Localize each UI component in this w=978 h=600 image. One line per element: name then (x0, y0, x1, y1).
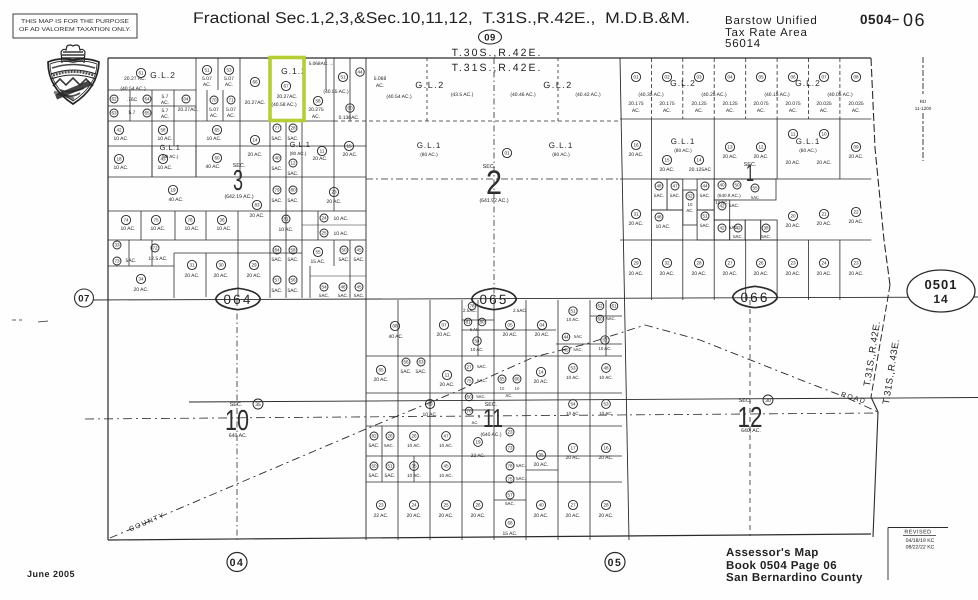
svg-text:34: 34 (138, 277, 144, 282)
svg-text:78: 78 (469, 304, 475, 309)
svg-text:065: 065 (479, 292, 508, 307)
svg-text:20 AC.: 20 AC. (249, 213, 264, 219)
svg-text:77: 77 (274, 126, 280, 131)
svg-text:80: 80 (479, 320, 485, 325)
svg-text:Assessor's Map: Assessor's Map (726, 547, 819, 559)
svg-text:78: 78 (507, 464, 513, 469)
svg-text:20 AC.: 20 AC. (470, 513, 485, 519)
svg-text:(80 AC.): (80 AC.) (674, 148, 692, 154)
svg-text:05: 05 (758, 75, 764, 80)
svg-text:36: 36 (219, 218, 225, 223)
svg-text:G.L.1: G.L.1 (796, 137, 821, 146)
svg-text:68: 68 (507, 521, 513, 526)
svg-text:5AC.: 5AC. (415, 369, 426, 375)
svg-text:10 AC.: 10 AC. (566, 411, 580, 416)
svg-text:75: 75 (466, 379, 472, 384)
svg-text:G.L.1: G.L.1 (549, 141, 574, 150)
svg-text:AC.: AC. (726, 108, 734, 114)
svg-text:G.L.2: G.L.2 (150, 70, 176, 80)
svg-text:14: 14 (538, 370, 544, 375)
svg-text:04: 04 (183, 97, 189, 102)
svg-text:14: 14 (933, 292, 948, 306)
svg-text:31: 31 (189, 263, 195, 268)
svg-text:20 AC.: 20 AC. (848, 271, 863, 277)
svg-text:AC.: AC. (376, 83, 384, 89)
svg-text:80: 80 (290, 188, 296, 193)
svg-text:0504: 0504 (860, 12, 892, 27)
svg-text:10 AC.: 10 AC. (470, 347, 483, 352)
svg-text:64: 64 (144, 97, 150, 102)
svg-text:5.068AC.→: 5.068AC.→ (309, 61, 334, 67)
svg-text:AC.: AC. (789, 108, 797, 114)
svg-text:26: 26 (475, 503, 481, 508)
svg-text:5AC.: 5AC. (729, 203, 739, 208)
svg-text:04: 04 (727, 75, 733, 80)
svg-text:51: 51 (204, 68, 210, 73)
svg-text:57: 57 (274, 278, 280, 283)
svg-text:(40.54 AC.): (40.54 AC.) (386, 94, 412, 100)
svg-text:45: 45 (563, 348, 569, 353)
svg-text:20 AC.: 20 AC. (533, 513, 548, 519)
svg-text:5AC.: 5AC. (368, 473, 379, 479)
svg-text:(40.55 AC.): (40.55 AC.) (323, 89, 349, 95)
svg-text:23: 23 (378, 503, 384, 508)
svg-text:20 AC.: 20 AC. (628, 271, 643, 277)
svg-text:10 AC.: 10 AC. (599, 375, 613, 380)
svg-text:20 AC.: 20 AC. (659, 167, 674, 173)
svg-text:16: 16 (603, 446, 609, 451)
svg-text:5AC.: 5AC. (287, 198, 298, 204)
svg-text:20.27AC.: 20.27AC. (178, 107, 199, 113)
svg-text:75: 75 (153, 218, 159, 223)
svg-text:62: 62 (597, 304, 603, 309)
svg-text:20 AC.: 20 AC. (691, 271, 706, 277)
svg-text:23: 23 (507, 430, 513, 435)
svg-text:54: 54 (321, 285, 327, 290)
svg-text:20 AC.: 20 AC. (785, 271, 800, 277)
svg-text:(640.8 AC.): (640.8 AC.) (717, 193, 741, 198)
svg-text:AC.: AC. (203, 82, 211, 88)
svg-text:65: 65 (144, 111, 150, 116)
svg-text:40: 40 (719, 183, 725, 188)
svg-text:10 AC.: 10 AC. (598, 346, 611, 351)
svg-text:09: 09 (484, 32, 496, 43)
svg-text:60: 60 (466, 395, 472, 400)
svg-text:58: 58 (160, 128, 166, 133)
svg-text:44: 44 (702, 184, 708, 189)
svg-text:42: 42 (719, 226, 725, 231)
svg-text:AC.: AC. (852, 108, 860, 114)
svg-text:5AC.: 5AC. (287, 288, 298, 294)
svg-text:(40.46 AC.): (40.46 AC.) (510, 92, 536, 98)
svg-text:5AC.: 5AC. (384, 443, 394, 448)
svg-text:AC.: AC. (161, 114, 169, 120)
svg-text:(40.42 AC.): (40.42 AC.) (575, 92, 601, 98)
svg-text:52: 52 (687, 194, 693, 199)
svg-text:24: 24 (821, 261, 827, 266)
svg-text:20.27 AC.: 20.27 AC. (124, 76, 146, 82)
svg-text:43: 43 (735, 226, 741, 231)
svg-text:10 AC.: 10 AC. (655, 224, 670, 230)
svg-text:14: 14 (696, 158, 702, 163)
svg-text:27: 27 (570, 503, 576, 508)
svg-text:OF AD VALOREM TAXATION ONLY.: OF AD VALOREM TAXATION ONLY. (19, 27, 132, 33)
svg-text:55: 55 (752, 186, 758, 191)
svg-text:5AC.: 5AC. (573, 347, 582, 352)
svg-text:24: 24 (321, 216, 327, 221)
svg-text:45: 45 (356, 248, 362, 253)
svg-text:10: 10 (515, 386, 520, 391)
svg-text:5AC.: 5AC. (338, 293, 348, 298)
svg-text:21: 21 (821, 212, 827, 217)
svg-text:5AC.: 5AC. (125, 258, 136, 264)
svg-text:20 AC.: 20 AC. (438, 513, 453, 519)
svg-text:12.5 AC.: 12.5 AC. (148, 256, 167, 262)
svg-text:20 AC.: 20 AC. (373, 377, 388, 383)
svg-text:06: 06 (903, 10, 926, 30)
svg-text:10 AC.: 10 AC. (333, 216, 348, 222)
svg-text:58: 58 (290, 248, 296, 253)
svg-text:32: 32 (664, 261, 670, 266)
svg-text:81: 81 (283, 217, 289, 222)
svg-text:23: 23 (790, 261, 796, 266)
svg-text:0501: 0501 (925, 277, 958, 292)
svg-text:5AC.: 5AC. (761, 234, 771, 239)
svg-text:51: 51 (340, 75, 346, 80)
svg-text:01: 01 (504, 151, 510, 156)
svg-text:20 AC.: 20 AC. (133, 287, 148, 293)
svg-text:07: 07 (821, 75, 827, 80)
svg-text:12: 12 (758, 145, 764, 150)
svg-text:44: 44 (563, 335, 569, 340)
svg-text:20 AC.: 20 AC. (816, 160, 831, 166)
svg-text:03: 03 (696, 75, 702, 80)
svg-text:26: 26 (758, 261, 764, 266)
svg-text:10 AC.: 10 AC. (278, 227, 293, 233)
svg-text:20 AC.: 20 AC. (326, 199, 341, 205)
svg-text:20 AC.: 20 AC. (816, 221, 831, 227)
svg-text:5AC.: 5AC. (271, 166, 282, 172)
svg-text:08: 08 (392, 324, 398, 329)
svg-text:63: 63 (111, 111, 117, 116)
svg-text:5AC.: 5AC. (670, 193, 680, 198)
svg-text:47: 47 (443, 434, 449, 439)
svg-text:20 AC.: 20 AC. (753, 271, 768, 277)
svg-text:60: 60 (214, 156, 220, 161)
svg-text:G.L.2: G.L.2 (670, 78, 696, 88)
svg-text:17: 17 (570, 446, 576, 451)
svg-text:(641.92 AC.): (641.92 AC.) (479, 198, 508, 204)
svg-text:20 AC.: 20 AC. (722, 154, 737, 160)
svg-text:20 AC.: 20 AC. (342, 152, 357, 158)
svg-text:20 AC.: 20 AC. (533, 462, 548, 468)
svg-text:20 AC.: 20 AC. (628, 152, 643, 158)
svg-text:10 AC.: 10 AC. (407, 443, 421, 448)
svg-text:82: 82 (371, 434, 377, 439)
svg-text:04/18/19 KC: 04/18/19 KC (906, 538, 935, 544)
svg-text:56: 56 (290, 278, 296, 283)
svg-text:REVISED: REVISED (904, 530, 931, 536)
svg-text:G.L.1: G.L.1 (290, 140, 311, 149)
svg-text:5AC.: 5AC. (400, 369, 411, 375)
svg-text:50: 50 (371, 464, 377, 469)
svg-text:15 AC.: 15 AC. (310, 259, 325, 265)
svg-text:(80 AC.): (80 AC.) (552, 152, 570, 158)
svg-text:28: 28 (290, 126, 296, 131)
svg-text:5AC.: 5AC. (733, 234, 743, 239)
svg-text:Barstow Unified: Barstow Unified (725, 15, 818, 27)
svg-text:AC.: AC. (663, 108, 671, 114)
svg-text:71: 71 (228, 98, 234, 103)
svg-text:5AC.: 5AC. (476, 394, 485, 399)
svg-text:66: 66 (252, 80, 258, 85)
svg-text:20 AC.: 20 AC. (722, 271, 737, 277)
svg-text:73: 73 (507, 446, 513, 451)
svg-text:20 AC.: 20 AC. (848, 154, 863, 160)
svg-text:(40.5​8 AC.): (40.5​8 AC.) (271, 102, 297, 108)
svg-text:20 AC.: 20 AC. (598, 455, 613, 461)
svg-text:51: 51 (702, 214, 708, 219)
svg-text:30: 30 (765, 398, 771, 404)
svg-text:15 AC.: 15 AC. (502, 531, 517, 537)
svg-text:0.136AC.: 0.136AC. (339, 115, 360, 121)
svg-text:51: 51 (387, 464, 393, 469)
svg-text:G.L.2: G.L.2 (415, 80, 445, 90)
svg-text:10 AC.: 10 AC. (439, 473, 453, 478)
svg-text:20 AC.: 20 AC. (312, 156, 327, 162)
svg-text:5AC.: 5AC. (654, 193, 664, 198)
svg-text:064: 064 (223, 292, 252, 307)
svg-text:51: 51 (570, 309, 576, 314)
svg-text:74: 74 (123, 218, 129, 223)
svg-text:31: 31 (633, 212, 639, 217)
svg-text:AC.: AC. (472, 420, 479, 425)
svg-text:G.L.2: G.L.2 (795, 78, 821, 88)
svg-text:61: 61 (138, 71, 144, 76)
svg-text:35: 35 (411, 464, 417, 469)
svg-text:20.075: 20.075 (753, 101, 769, 107)
svg-text:65: 65 (499, 377, 505, 382)
svg-text:RD: RD (920, 99, 927, 104)
svg-text:10 AC.: 10 AC. (113, 165, 128, 171)
svg-text:20 AC.: 20 AC. (659, 271, 674, 277)
svg-text:04: 04 (539, 323, 545, 328)
svg-text:67: 67 (283, 84, 289, 89)
svg-text:AC.: AC. (506, 393, 513, 398)
svg-text:AC.: AC. (210, 113, 218, 119)
svg-text:22 AC.: 22 AC. (373, 513, 388, 519)
svg-text:45: 45 (356, 285, 362, 290)
svg-text:5AC.: 5AC. (354, 293, 364, 298)
svg-text:10 AC.: 10 AC. (566, 375, 580, 380)
svg-text:June 2005: June 2005 (27, 569, 75, 579)
svg-text:58: 58 (315, 99, 321, 104)
svg-text:29: 29 (251, 263, 257, 268)
svg-text:5AC.: 5AC. (271, 288, 282, 294)
svg-text:56: 56 (403, 360, 409, 365)
svg-text:10 AC.: 10 AC. (566, 317, 579, 322)
svg-text:54: 54 (570, 402, 576, 407)
svg-text:46: 46 (340, 285, 346, 290)
svg-text:T.31S.,R.42E.: T.31S.,R.42E. (452, 62, 543, 74)
svg-text:–: – (892, 11, 899, 26)
svg-text:20 AC.: 20 AC. (848, 219, 863, 225)
svg-text:11: 11 (320, 149, 325, 154)
svg-text:28: 28 (603, 503, 609, 508)
svg-text:20.025: 20.025 (816, 101, 832, 107)
svg-text:60: 60 (347, 106, 353, 111)
svg-text:(80 AC.): (80 AC.) (420, 152, 438, 158)
svg-text:.76C: .76C (127, 97, 138, 103)
svg-text:20.025: 20.025 (848, 101, 864, 107)
svg-text:44: 44 (357, 70, 363, 75)
svg-text:5AC.: 5AC. (384, 473, 395, 479)
svg-text:40: 40 (274, 156, 280, 161)
svg-text:Fractional Sec.1,2,3,&Sec.10,1: Fractional Sec.1,2,3,&Sec.10,11,12, T.31… (193, 10, 690, 27)
svg-text:T.30S.,R.42E.: T.30S.,R.42E. (452, 47, 543, 59)
svg-text:AC.: AC. (161, 100, 169, 106)
svg-text:5AC.: 5AC. (368, 443, 379, 449)
svg-text:40 AC.: 40 AC. (388, 334, 403, 340)
svg-text:THIS MAP IS FOR THE PURPOSE: THIS MAP IS FOR THE PURPOSE (21, 19, 129, 25)
svg-text:10 AC.: 10 AC. (113, 136, 128, 142)
svg-text:5AC.: 5AC. (287, 171, 298, 177)
svg-text:26: 26 (411, 434, 417, 439)
svg-text:53: 53 (603, 402, 609, 407)
svg-text:AC.: AC. (632, 108, 640, 114)
svg-text:07: 07 (441, 323, 447, 328)
svg-text:79: 79 (274, 188, 280, 193)
svg-text:10 AC.: 10 AC. (599, 411, 613, 416)
svg-text:10 AC.: 10 AC. (157, 165, 172, 171)
svg-text:65: 65 (214, 128, 220, 133)
svg-text:10 AC.: 10 AC. (120, 226, 135, 232)
svg-text:AC.: AC. (225, 82, 233, 88)
svg-text:10 AC.: 10 AC. (422, 412, 437, 418)
svg-text:29: 29 (633, 261, 639, 266)
svg-text:47: 47 (672, 184, 678, 189)
svg-text:5AC.: 5AC. (516, 476, 526, 481)
svg-text:5AC: 5AC (751, 195, 759, 200)
svg-text:5AC.: 5AC. (477, 364, 487, 369)
svg-text:5.7: 5.7 (129, 110, 136, 116)
svg-text:5AC.: 5AC. (271, 257, 282, 263)
svg-text:20: 20 (790, 214, 796, 219)
svg-text:53: 53 (570, 366, 576, 371)
svg-text:AC.: AC. (312, 114, 320, 120)
svg-text:G.L.2: G.L.2 (543, 80, 573, 90)
svg-text:20.125: 20.125 (691, 101, 707, 107)
svg-text:640| AC.: 640| AC. (741, 428, 761, 434)
svg-text:10: 10 (500, 386, 505, 391)
svg-text:10 AC.: 10 AC. (407, 473, 421, 478)
svg-text:15: 15 (664, 158, 670, 163)
svg-text:01: 01 (633, 75, 639, 80)
svg-text:73: 73 (114, 259, 120, 264)
svg-text:10 AC.: 10 AC. (439, 443, 453, 448)
svg-text:5AC.: 5AC. (505, 501, 515, 506)
svg-text:5AC.: 5AC. (353, 257, 364, 263)
svg-text:2: 2 (486, 164, 502, 202)
svg-text:AC.: AC. (695, 108, 703, 114)
svg-text:65: 65 (378, 368, 384, 373)
svg-text:19: 19 (475, 440, 481, 445)
svg-text:20 AC.: 20 AC. (184, 273, 199, 279)
svg-text:72: 72 (152, 246, 158, 251)
svg-text:20.27AC.: 20.27AC. (277, 94, 298, 100)
svg-text:62: 62 (111, 97, 117, 102)
svg-text:10 AC.: 10 AC. (184, 226, 199, 232)
svg-text:5AC.: 5AC. (271, 198, 282, 204)
svg-text:20 AC.: 20 AC. (565, 513, 580, 519)
svg-text:48: 48 (656, 184, 662, 189)
svg-text:AC.: AC. (686, 208, 693, 213)
svg-text:15: 15 (346, 144, 352, 149)
svg-text:11: 11 (445, 373, 450, 378)
svg-text:27: 27 (727, 261, 733, 266)
svg-text:53: 53 (226, 68, 232, 73)
svg-text:(40.15 AC.): (40.15 AC.) (764, 92, 790, 98)
svg-text:81: 81 (465, 320, 471, 325)
svg-text:Book 0504 Page 06: Book 0504 Page 06 (726, 560, 837, 572)
svg-text:52: 52 (602, 338, 608, 343)
svg-text:35: 35 (538, 453, 544, 458)
svg-text:5AC.: 5AC. (516, 463, 526, 468)
svg-text:640 AC.: 640 AC. (229, 433, 247, 439)
svg-text:10 AC.: 10 AC. (206, 136, 221, 142)
svg-text:23: 23 (331, 190, 337, 195)
svg-text:56014: 56014 (725, 38, 761, 50)
svg-text:20 AC.: 20 AC. (785, 160, 800, 166)
svg-text:09: 09 (853, 145, 859, 150)
svg-text:20 AC.: 20 AC. (628, 221, 643, 227)
svg-text:35: 35 (255, 402, 261, 408)
svg-text:48: 48 (603, 366, 609, 371)
svg-text:5AC.: 5AC. (700, 193, 710, 198)
svg-text:05: 05 (507, 323, 513, 328)
svg-text:20 AC.: 20 AC. (502, 332, 517, 338)
svg-text:10 AC.: 10 AC. (150, 226, 165, 232)
svg-text:10: 10 (688, 202, 693, 207)
svg-text:066: 066 (740, 290, 769, 305)
svg-text:3: 3 (233, 165, 243, 197)
svg-text:5 AC.: 5 AC. (470, 327, 480, 332)
svg-text:07: 07 (78, 293, 90, 304)
svg-text:42: 42 (116, 128, 122, 133)
svg-text:38: 38 (763, 226, 769, 231)
svg-text:48: 48 (656, 215, 662, 220)
svg-text:83: 83 (254, 203, 260, 208)
svg-text:40: 40 (538, 503, 544, 508)
svg-text:19: 19 (170, 188, 176, 193)
svg-text:20 AC.: 20 AC. (534, 332, 549, 338)
svg-text:2.5AC.: 2.5AC. (513, 308, 527, 313)
svg-text:20 AC.: 20 AC. (816, 271, 831, 277)
svg-text:(642.19 AC.): (642.19 AC.) (224, 194, 253, 200)
svg-text:50: 50 (341, 248, 347, 253)
svg-text:5.068: 5.068 (374, 76, 387, 82)
svg-text:San Bernardino County: San Bernardino County (726, 572, 863, 584)
svg-text:20 AC.: 20 AC. (436, 332, 451, 338)
svg-text:24: 24 (411, 503, 417, 508)
svg-text:26: 26 (387, 434, 393, 439)
svg-text:5AC: 5AC (574, 334, 582, 339)
svg-text:12: 12 (290, 161, 296, 166)
svg-text:60: 60 (597, 317, 603, 322)
svg-text:20.175: 20.175 (628, 101, 644, 107)
svg-text:10 AC.: 10 AC. (216, 226, 231, 232)
svg-text:(40.05 AC.): (40.05 AC.) (827, 92, 853, 98)
